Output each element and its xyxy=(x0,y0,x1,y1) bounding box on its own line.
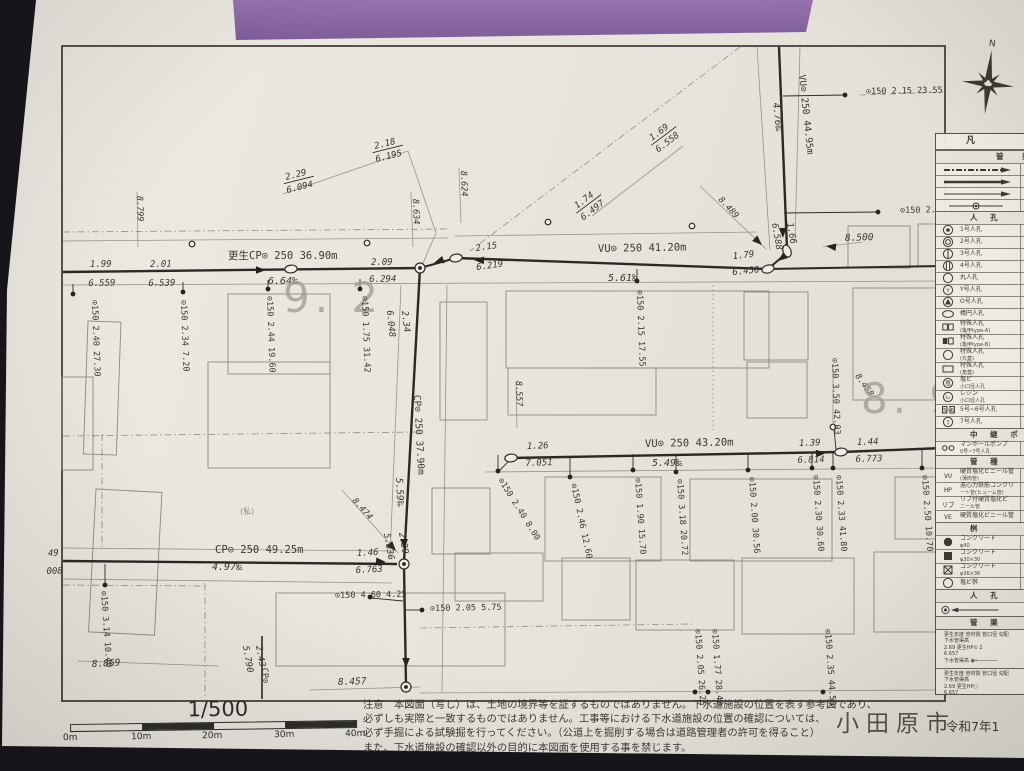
legend-sublabel: ニール管 xyxy=(960,504,1020,510)
legend-example-arrow xyxy=(936,602,1024,616)
level-pair: 49008 xyxy=(46,549,63,578)
legend-label: 楕円人孔 xyxy=(960,311,1020,317)
map-label: ⊙150 2.46 12.60 xyxy=(568,483,594,560)
sewer-pipe xyxy=(779,47,787,249)
road-line xyxy=(63,238,448,241)
pair-bottom: 008 xyxy=(46,566,63,577)
map-label: ⊙150 2.50 10.70 xyxy=(919,475,934,552)
legend-symbol-c xyxy=(936,349,960,362)
map-label: ⊙150 3.50 42.03 xyxy=(829,358,842,435)
service-dot xyxy=(568,475,573,480)
pair-bottom: 6.539 xyxy=(148,279,175,289)
legend-sublabel: 小口径人孔 xyxy=(960,398,1020,404)
road-line xyxy=(757,47,770,250)
legend-section-header: 管 渠 xyxy=(936,150,1024,163)
map-label: ⊙150 3.14 10.40 xyxy=(98,591,113,668)
compass-rose-icon: N xyxy=(952,30,1022,134)
level-pair: 2.395.836 xyxy=(381,530,410,561)
pair-bottom: 6.559 xyxy=(88,279,115,289)
building-outline xyxy=(874,552,942,632)
legend-symbol-sp-a xyxy=(936,321,960,334)
service-dot xyxy=(103,583,108,588)
map-label: 4.76‰ xyxy=(770,102,784,132)
map-label: 5.49‰ xyxy=(652,458,683,469)
road-line xyxy=(63,281,943,285)
legend-row: 塩塩ビ小口径人孔 xyxy=(936,376,1024,390)
legend-row: O号人孔 xyxy=(936,296,1024,308)
service-dot xyxy=(821,690,826,695)
map-label: ⊙150 2.40 27.30 xyxy=(89,300,102,377)
map-label: ⊙150 2.40 8.00 xyxy=(495,476,541,542)
map-label: ⊙150 1.77 28.40 xyxy=(709,629,724,706)
legend-symbol-VE: VE xyxy=(936,513,960,521)
service-stub xyxy=(783,95,844,96)
note-line: 注意 本図面（写し）は、土地の境界等を証するものではありません。下水道施設の位置… xyxy=(363,698,843,712)
service-stub xyxy=(784,212,877,213)
legend-row: コンクリートφ36×36 xyxy=(936,563,1024,577)
legend-label: 1号人孔 xyxy=(960,227,1020,233)
survey-circle xyxy=(364,240,370,246)
caution-notes: 注意 本図面（写し）は、土地の境界等を証するものではありません。下水道施設の位置… xyxy=(363,698,843,755)
pair-bottom: 7.051 xyxy=(525,458,552,469)
scale-tick: 30m xyxy=(274,730,294,740)
manhole-ellipse xyxy=(449,253,463,263)
map-label: ⊙150 2.35 44.50 xyxy=(822,629,837,706)
manhole-junction-center xyxy=(402,562,406,566)
manhole-ellipse xyxy=(834,448,847,457)
legend-row: 特殊人孔(亀甲type-A) xyxy=(936,320,1024,334)
road-line xyxy=(420,690,943,693)
legend-row: 丸人孔 xyxy=(936,272,1024,284)
map-label: 更生CP⊙ 250 36.90m xyxy=(228,249,338,262)
pair-top: 2.15 xyxy=(475,241,498,254)
service-dot xyxy=(266,287,271,292)
legend-row: コンクリートφ40 xyxy=(936,535,1024,549)
road-line xyxy=(63,579,392,583)
service-dot xyxy=(181,290,186,295)
legend-line-symbol-row xyxy=(936,187,1024,199)
legend-label: 4号人孔 xyxy=(960,263,1020,269)
legend-label: 塩ビ桝 xyxy=(960,580,1020,586)
survey-circle xyxy=(189,241,195,247)
flow-arrow-icon xyxy=(256,266,266,274)
legend-row: 2号人孔 xyxy=(936,236,1024,248)
legend-row: 5~65号~6号人孔 xyxy=(936,404,1024,416)
city-name: 小田原市 xyxy=(836,704,956,738)
legend-label: 2号人孔 xyxy=(960,239,1020,245)
legend-row: 塩ビ桝 xyxy=(936,577,1024,589)
map-label: ⊙150 1.90 15.70 xyxy=(632,478,647,555)
level-pair: 2.096.294 xyxy=(369,258,397,285)
map-label: ⊙150 2.15 17.55 xyxy=(634,290,647,367)
pair-top: 2.09 xyxy=(371,258,393,268)
legend-row: コンクリートφ30×30 xyxy=(936,549,1024,563)
legend-row: 楕円人孔 xyxy=(936,308,1024,320)
pair-top: 1.99 xyxy=(90,260,112,270)
pair-bottom: 6.048 xyxy=(384,310,397,338)
service-dot xyxy=(631,468,636,473)
compass-north-label: N xyxy=(988,39,996,50)
building-outline xyxy=(742,558,854,634)
scale-ratio: 1/500 xyxy=(58,695,378,723)
dashdot-line xyxy=(63,432,420,436)
legend-sublabel: (角蓋) xyxy=(960,370,1020,376)
legend-symbol-HP: HP xyxy=(936,486,960,494)
legend-label: Y号人孔 xyxy=(960,287,1020,293)
service-dot xyxy=(843,93,848,98)
level-pair: 1.267.051 xyxy=(525,441,553,469)
legend-section-header: 人 孔 xyxy=(936,211,1024,224)
legend-symbol-c xyxy=(936,577,960,590)
note-line: 必ず手掘による試験掘を行ってください。（公道上を掘削する場合は道路管理者の許可を… xyxy=(363,726,843,740)
pair-top: 1.46 xyxy=(357,548,379,559)
pair-top: 1.26 xyxy=(527,441,549,452)
building-outline xyxy=(508,368,656,415)
survey-circle xyxy=(689,223,695,229)
level-pair: 1.796.450 xyxy=(730,249,760,278)
legend-row: ~マンホールポンプ0号~7号人孔 xyxy=(936,441,1024,455)
building-outline xyxy=(432,488,490,554)
legend-section-header: 管 種 xyxy=(936,455,1024,468)
level-pair: 2.016.539 xyxy=(148,260,176,289)
map-label: 4.97‰ xyxy=(212,562,243,573)
map-label: ⊙150 2.34 7.20 xyxy=(178,300,190,372)
building-outline xyxy=(208,362,330,468)
legend-symbol-sp-b xyxy=(936,335,960,348)
photo-of-sewer-map: { "photo":{"background":"#17141a","paper… xyxy=(0,0,1024,771)
map-label: 5.61‰ xyxy=(608,273,639,284)
map-label: VU⊙ 250 41.20m xyxy=(598,241,687,255)
pair-bottom: 6.294 xyxy=(369,275,396,285)
map-label: (私) xyxy=(240,507,254,516)
scale-tick: 10m xyxy=(131,732,151,742)
legend-panel: 凡 例 管 渠人 孔1号人孔2号人孔3号人孔4号人孔丸人孔YY号人孔O号人孔楕円… xyxy=(935,133,1024,695)
map-label: 8.624 xyxy=(458,171,469,197)
legend-row: YY号人孔 xyxy=(936,284,1024,296)
level-pair: 2.346.048 xyxy=(384,308,412,338)
road-line xyxy=(442,285,447,692)
legend-row: 特殊人孔(角蓋) xyxy=(936,362,1024,376)
legend-symbol-dot xyxy=(936,536,960,549)
building-outline xyxy=(440,302,487,420)
map-label: ⊙150 1.75 31.42 xyxy=(359,296,372,373)
pair-bottom: 6.814 xyxy=(797,455,824,466)
legend-row: 特殊人孔(亀甲type-B) xyxy=(936,334,1024,348)
service-dot xyxy=(496,469,501,474)
legend-sublabel: (丸蓋) xyxy=(960,356,1020,362)
legend-symbol-VU: VU xyxy=(936,472,960,480)
legend-symbol-リブ: リブ xyxy=(936,499,960,509)
service-dot xyxy=(810,466,815,471)
pair-bottom: 5.836 xyxy=(381,532,396,560)
map-label: 8.634 xyxy=(410,199,421,225)
map-canvas: 更生CP⊙ 250 36.90m6.64‰VU⊙ 250 41.20m5.61‰… xyxy=(0,0,1024,771)
pair-top: 49 xyxy=(48,549,59,559)
svg-text:6: 6 xyxy=(950,408,954,414)
legend-label: 硬質塩化ビニール管 xyxy=(960,513,1020,519)
map-label: 8.557 xyxy=(513,381,524,408)
legend-label: O号人孔 xyxy=(960,299,1020,305)
map-label: ⊙150 2.00 30.56 xyxy=(746,477,761,554)
building-outline xyxy=(455,553,543,601)
legend-sublabel: (薄肉管) xyxy=(960,476,1020,482)
legend-row: 特殊人孔(丸蓋) xyxy=(936,348,1024,362)
legend-row: 77号人孔 xyxy=(936,416,1024,428)
map-label: 8.799 xyxy=(134,196,145,222)
building-outline xyxy=(744,292,808,360)
sewer-pipe xyxy=(768,266,943,269)
service-dot xyxy=(876,210,881,215)
legend-symbol-sq xyxy=(936,550,960,563)
service-dot xyxy=(420,608,425,613)
service-dot xyxy=(831,466,836,471)
service-dot xyxy=(746,468,751,473)
road-line xyxy=(455,232,757,236)
svg-text:塩: 塩 xyxy=(945,379,951,387)
manhole-ellipse xyxy=(504,454,517,463)
level-pair: 2.296.094 xyxy=(281,166,317,196)
pair-top: 1.79 xyxy=(732,250,755,262)
legend-symbol-pump: ~ xyxy=(936,442,960,455)
scale-tick: 0m xyxy=(63,733,78,743)
legend-row: VE硬質塩化ビニール管 xyxy=(936,510,1024,522)
map-label: 5.59‰ xyxy=(393,478,405,507)
map-label: 8.457 xyxy=(338,676,367,688)
legend-row: 4号人孔 xyxy=(936,260,1024,272)
map-label: CP⊙ 250 49.25m xyxy=(215,544,304,556)
service-dot xyxy=(71,292,76,297)
legend-symbol-c-r: レ xyxy=(936,391,960,404)
pair-bottom: 5.790 xyxy=(240,645,255,673)
legend-section-header: 中 継 ポ ン プ xyxy=(936,428,1024,441)
legend-annotation-example: 更生年度 管材質 管口径 勾配下水管渠高2.69 更生HP⊙ 26.657下水管… xyxy=(936,629,1024,668)
pair-bottom: 6.773 xyxy=(855,454,882,465)
svg-text:レ: レ xyxy=(945,395,951,401)
legend-symbol-rect xyxy=(936,363,960,376)
map-label: ⊙150 2.33 41.80 xyxy=(833,475,848,552)
survey-circle xyxy=(545,219,551,225)
legend-line-symbol-row xyxy=(936,163,1024,175)
legend-section-header: 管 渠 xyxy=(936,616,1024,629)
map-label: ⊙150 2.15 23.55 xyxy=(866,86,943,97)
dashdot-line xyxy=(420,624,692,628)
legend-sublabel: 0号~7号人孔 xyxy=(960,449,1020,455)
legend-section-header: 人 孔 xyxy=(936,589,1024,602)
map-label: ⊙150 4.60 4.25 xyxy=(335,590,407,601)
legend-label: 遠心力鉄筋コンクリ xyxy=(960,483,1020,489)
svg-text:Y: Y xyxy=(945,288,950,294)
building-outline xyxy=(636,560,734,630)
legend-sublabel: (亀甲type-A) xyxy=(960,328,1020,334)
map-label: 8.474 xyxy=(350,496,375,522)
scale-block: 1/500 0m 10m 20m 30m 40m xyxy=(58,695,379,744)
pair-bottom: 6.450 xyxy=(732,265,760,278)
level-pair: 2.186.195 xyxy=(370,135,406,165)
map-label: ⊙150 2.05 5.75 xyxy=(430,603,502,614)
map-label: VU⊙ 250 43.20m xyxy=(645,436,734,450)
pair-top: 1.44 xyxy=(857,437,879,448)
legend-rows: 管 渠人 孔1号人孔2号人孔3号人孔4号人孔丸人孔YY号人孔O号人孔楕円人孔特殊… xyxy=(936,150,1024,695)
pair-top: 2.01 xyxy=(150,260,172,270)
note-line: また、下水道施設の確認以外の目的に本図面を使用する事を禁じます。 xyxy=(363,741,843,755)
note-line: 必ずしも実際と一致するものではありません。工事等における下水道施設の位置の確認に… xyxy=(363,712,843,726)
legend-section-header: 桝 xyxy=(936,522,1024,535)
legend-sublabel: φ30×30 xyxy=(960,557,1020,563)
legend-row: 3号人孔 xyxy=(936,248,1024,260)
sewer-pipe xyxy=(63,268,420,272)
legend-label: 3号人孔 xyxy=(960,251,1020,257)
map-label: 8.489 xyxy=(716,195,741,221)
map-label: CP⊙ xyxy=(259,668,270,684)
legend-title: 凡 例 xyxy=(936,134,1024,150)
pair-bottom: 6.763 xyxy=(356,565,384,576)
service-dot xyxy=(674,470,679,475)
legend-row: 1号人孔 xyxy=(936,224,1024,236)
pair-bottom: 6.588 xyxy=(769,222,784,250)
legend-sublabel: (亀甲type-B) xyxy=(960,342,1020,348)
legend-row: HP遠心力鉄筋コンクリート管(ヒューム管) xyxy=(936,482,1024,496)
legend-sublabel: φ36×36 xyxy=(960,571,1020,577)
pair-top: 2.39 xyxy=(396,532,410,555)
dashdot-line xyxy=(470,47,740,251)
level-pair: 1.746.497 xyxy=(570,187,609,224)
manhole-junction-center xyxy=(418,266,422,270)
legend-sublabel: φ40 xyxy=(960,543,1020,549)
map-label: CP⊙ 250 37.90m xyxy=(411,395,426,476)
scale-tick: 20m xyxy=(202,731,222,741)
road-line xyxy=(423,233,436,263)
level-pair: 2.156.219 xyxy=(473,241,504,273)
legend-row: レレジン小口径人孔 xyxy=(936,390,1024,404)
legend-line-symbol-row xyxy=(936,199,1024,211)
legend-sublabel: ート管(ヒューム管) xyxy=(960,490,1020,496)
date-label: 令和7年1 xyxy=(946,716,999,735)
legend-line-symbol-row xyxy=(936,175,1024,187)
legend-symbol-sqx xyxy=(936,564,960,577)
map-label: ⊙150 2.30 30.60 xyxy=(810,475,825,552)
legend-label: 硬質塩化ビニール管 xyxy=(960,469,1020,475)
map-label: VU⊙ 250 44.95m xyxy=(796,74,815,155)
pair-top: 2.43 xyxy=(253,645,267,668)
legend-label: 7号人孔 xyxy=(960,419,1020,425)
manhole-junction-center xyxy=(404,685,408,689)
pair-top: 1.39 xyxy=(799,438,821,449)
svg-text:7: 7 xyxy=(946,420,950,426)
road-line xyxy=(485,468,943,472)
building-outline xyxy=(62,377,93,470)
map-label: 8.500 xyxy=(845,232,874,244)
legend-symbol-c-7: 7 xyxy=(936,416,960,429)
legend-annotation-example: 更生年度 管材質 管口径 勾配下水管渠高2.69 更生HP○6.657下水管底高… xyxy=(936,668,1024,695)
legend-label: 5号~6号人孔 xyxy=(960,407,1020,413)
flow-arrow-icon xyxy=(826,242,837,251)
level-pair: 1.996.559 xyxy=(88,260,116,289)
legend-row: リブリブ付硬質塩化ビニール管 xyxy=(936,496,1024,510)
map-label: ⊙150 2.44 19.60 xyxy=(264,296,277,373)
dashdot-line xyxy=(63,585,205,586)
pair-top: 2.34 xyxy=(399,310,411,333)
legend-symbol-c-e: 塩 xyxy=(936,377,960,390)
flow-arrow-icon xyxy=(402,658,410,668)
legend-sublabel: 小口径人孔 xyxy=(960,384,1020,390)
legend-label: 丸人孔 xyxy=(960,275,1020,281)
map-label: ⊙150 3.18 20.72 xyxy=(674,479,689,556)
sewer-pipe xyxy=(842,448,943,452)
building-outline xyxy=(562,558,630,620)
service-dot xyxy=(920,466,925,471)
manhole-ellipse xyxy=(761,264,775,275)
legend-symbol-ellipse xyxy=(936,308,960,321)
legend-row: VU硬質塩化ビニール管(薄肉管) xyxy=(936,468,1024,482)
dashdot-line xyxy=(63,229,448,232)
building-outline xyxy=(747,362,807,418)
